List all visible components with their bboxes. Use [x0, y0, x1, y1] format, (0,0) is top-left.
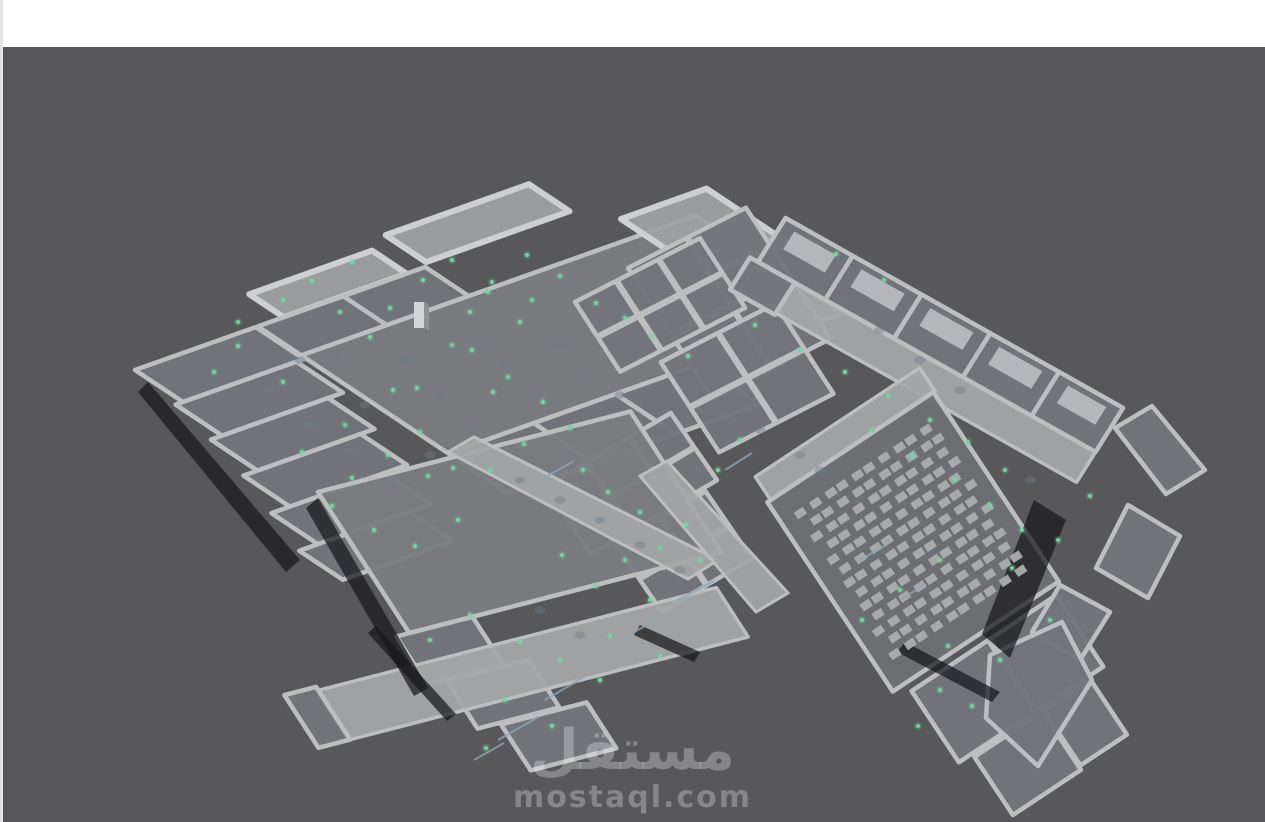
sensor-dot [368, 335, 372, 339]
sensor-dot [518, 320, 522, 324]
ceiling-fixture [1025, 476, 1036, 484]
sensor-dot [946, 644, 950, 648]
sensor-dot [281, 298, 285, 302]
left-edge-strip [0, 0, 3, 822]
column-pillar [424, 302, 429, 330]
sensor-dot [898, 588, 902, 592]
ceiling-fixture [330, 351, 341, 359]
sensor-dot [1048, 618, 1052, 622]
sensor-dot [738, 438, 742, 442]
sensor-dot [834, 252, 838, 256]
sensor-dot [300, 450, 304, 454]
column-pillar [414, 302, 424, 328]
sensor-dot [236, 344, 240, 348]
sensor-dot [490, 280, 494, 284]
ceiling-fixture [835, 296, 846, 304]
ceiling-fixture [475, 336, 486, 344]
sensor-dot [558, 658, 562, 662]
sensor-dot [1003, 468, 1007, 472]
top-bar [0, 0, 1265, 47]
sensor-dot [928, 418, 932, 422]
sensor-dot [608, 634, 612, 638]
sensor-dot [518, 640, 522, 644]
sensor-dot [418, 430, 422, 434]
sensor-dot [1088, 494, 1092, 498]
sensor-dot [506, 375, 510, 379]
sensor-dot [525, 253, 529, 257]
sensor-dot [988, 503, 992, 507]
sensor-dot [486, 290, 490, 294]
sensor-dot [388, 306, 392, 310]
ceiling-fixture [295, 356, 306, 364]
sensor-dot [541, 400, 545, 404]
ceiling-fixture [815, 466, 826, 474]
sensor-dot [716, 468, 720, 472]
ceiling-fixture [955, 386, 966, 394]
sensor-dot [451, 466, 455, 470]
sensor-dot [998, 658, 1002, 662]
sensor-dot [638, 510, 642, 514]
sensor-dot [488, 468, 492, 472]
sensor-dot [426, 474, 430, 478]
model-viewport[interactable]: مستقل mostaql.com [0, 47, 1265, 822]
ceiling-fixture [915, 356, 926, 364]
sensor-dot [343, 423, 347, 427]
ceiling-fixture [755, 426, 766, 434]
sensor-dot [658, 546, 662, 550]
ceiling-fixture [305, 421, 316, 429]
sensor-dot [650, 334, 654, 338]
sensor-dot [938, 688, 942, 692]
sensor-dot [470, 348, 474, 352]
sensor-dot [1056, 538, 1060, 542]
sensor-dot [450, 343, 454, 347]
floorplan-3d-canvas[interactable] [0, 47, 1265, 822]
sensor-dot [753, 323, 757, 327]
sensor-dot [568, 426, 572, 430]
sensor-dot [843, 370, 847, 374]
ceiling-fixture [795, 451, 806, 459]
sensor-dot [970, 704, 974, 708]
sensor-dot [698, 558, 702, 562]
sensor-dot [966, 440, 970, 444]
sensor-dot [606, 490, 610, 494]
ceiling-fixture [585, 366, 596, 374]
sensor-dot [1010, 566, 1014, 570]
sensor-dot [623, 558, 627, 562]
sensor-dot [468, 613, 472, 617]
sensor-dot [598, 678, 602, 682]
ceiling-fixture [535, 606, 546, 614]
ceiling-fixture [555, 496, 566, 504]
sensor-dot [421, 278, 425, 282]
ceiling-fixture [435, 391, 446, 399]
ceiling-fixture [615, 391, 626, 399]
sensor-dot [338, 310, 342, 314]
sensor-dot [916, 724, 920, 728]
sensor-dot [468, 310, 472, 314]
ceiling-fixture [425, 451, 436, 459]
ceiling-fixture [465, 426, 476, 434]
sensor-dot [658, 654, 662, 658]
sensor-dot [558, 274, 562, 278]
ceiling-fixture [515, 476, 526, 484]
ceiling-fixture [555, 341, 566, 349]
sensor-dot [550, 724, 554, 728]
sensor-dot [886, 394, 890, 398]
sensor-dot [456, 518, 460, 522]
sensor-dot [212, 370, 216, 374]
sensor-dot [415, 386, 419, 390]
ceiling-fixture [875, 326, 886, 334]
ceiling-fixture [385, 476, 396, 484]
sensor-dot [623, 316, 627, 320]
sensor-dot [860, 618, 864, 622]
sensor-dot [372, 528, 376, 532]
sensor-dot [684, 523, 688, 527]
sensor-dot [798, 348, 802, 352]
sensor-dot [870, 428, 874, 432]
sensor-dot [882, 278, 886, 282]
sensor-dot [310, 279, 314, 283]
ceiling-fixture [360, 401, 371, 409]
ceiling-fixture [345, 446, 356, 454]
sensor-dot [484, 746, 488, 750]
sensor-dot [530, 298, 534, 302]
sensor-dot [686, 354, 690, 358]
sensor-dot [648, 598, 652, 602]
sensor-dot [522, 442, 526, 446]
sensor-dot [1020, 528, 1024, 532]
sensor-dot [581, 468, 585, 472]
sensor-dot [428, 638, 432, 642]
sensor-dot [953, 478, 957, 482]
ceiling-fixture [500, 361, 511, 369]
sensor-dot [503, 698, 507, 702]
sensor-dot [560, 553, 564, 557]
sensor-dot [594, 584, 598, 588]
sensor-dot [236, 320, 240, 324]
sensor-dot [281, 380, 285, 384]
ceiling-fixture [530, 391, 541, 399]
ceiling-fixture [400, 356, 411, 364]
sensor-dot [938, 558, 942, 562]
sensor-dot [450, 258, 454, 262]
sensor-dot [330, 504, 334, 508]
sensor-dot [391, 388, 395, 392]
sensor-dot [386, 453, 390, 457]
ceiling-fixture [575, 631, 586, 639]
sensor-dot [910, 454, 914, 458]
ceiling-fixture [595, 516, 606, 524]
sensor-dot [413, 544, 417, 548]
ceiling-fixture [675, 566, 686, 574]
ceiling-fixture [265, 386, 276, 394]
sensor-dot [491, 390, 495, 394]
sensor-dot [350, 476, 354, 480]
ceiling-fixture [635, 541, 646, 549]
sensor-dot [594, 301, 598, 305]
sensor-dot [350, 260, 354, 264]
